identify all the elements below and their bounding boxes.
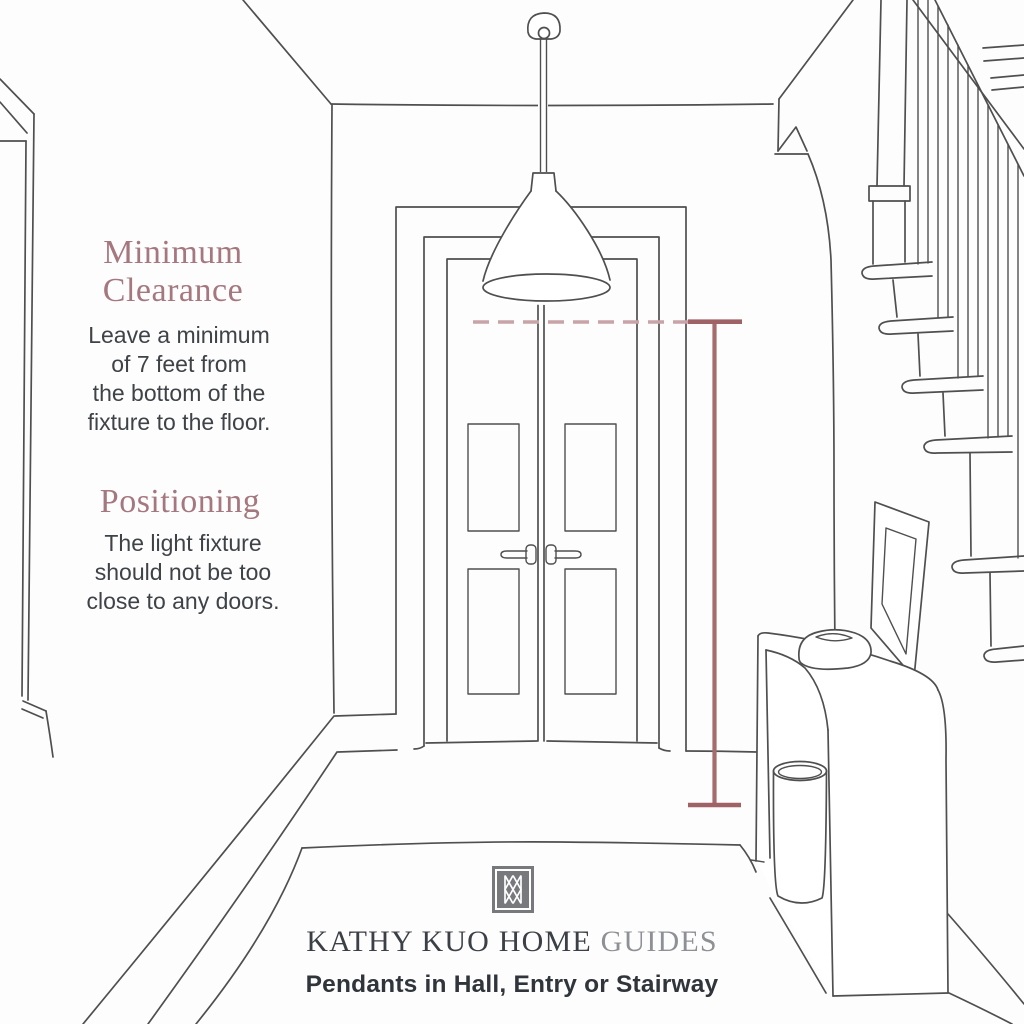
minimum-clearance-body: Leave a minimum of 7 feet from the botto… [88, 321, 271, 437]
brand-primary: KATHY KUO HOME [306, 925, 592, 958]
infographic-canvas: Minimum Clearance Leave a minimum of 7 f… [0, 0, 1024, 1024]
basket [773, 762, 826, 904]
brand-wordmark: KATHY KUO HOME GUIDES [306, 925, 718, 959]
upper-flight-treads [983, 45, 1024, 90]
leaning-frame [871, 502, 929, 678]
door-handles [501, 545, 581, 564]
balusters [918, 0, 1018, 558]
minimum-clearance-title: Minimum Clearance [103, 234, 243, 310]
shade-rim [483, 274, 610, 301]
measurement-line [688, 322, 742, 805]
floor-lines [948, 914, 1024, 1024]
guide-subtitle: Pendants in Hall, Entry or Stairway [306, 971, 719, 999]
pendant-light [483, 13, 611, 305]
kathy-kuo-home-logo-icon [492, 866, 534, 913]
brand-secondary: GUIDES [601, 925, 718, 958]
newel-post [869, 0, 910, 264]
decor-bowl [799, 630, 871, 670]
stair-wall-edge [808, 154, 835, 648]
positioning-body: The light fixture should not be too clos… [86, 529, 279, 616]
positioning-title: Positioning [100, 483, 260, 521]
